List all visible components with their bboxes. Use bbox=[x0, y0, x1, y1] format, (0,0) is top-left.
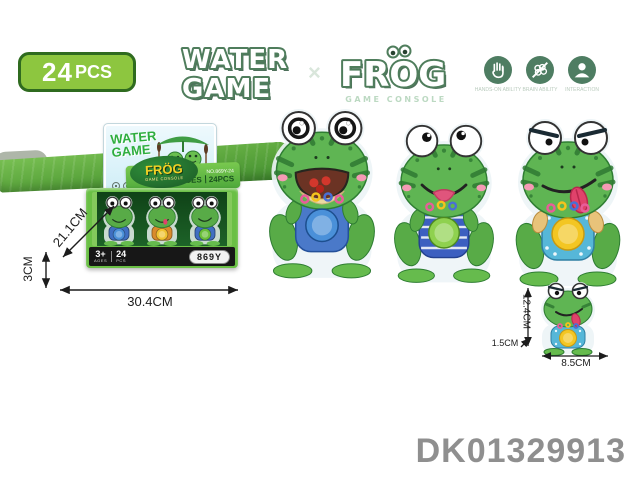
item-depth-label: 1.5CM bbox=[490, 338, 520, 348]
pad-brand-subtitle: GAME CONSOLE bbox=[145, 175, 184, 182]
quantity-badge: 24 PCS bbox=[18, 52, 136, 92]
badge-unit: PCS bbox=[75, 62, 112, 83]
feature-person: INTERACTION bbox=[566, 56, 598, 93]
frog-toy-small bbox=[536, 282, 600, 356]
logo-water: WATER bbox=[182, 45, 288, 75]
button-highlight bbox=[312, 215, 332, 235]
display-box-scene: WATER GAME bbox=[0, 118, 270, 318]
feature-icons-row: HANDS-ON ABILITY BRAIN ABILITY bbox=[482, 56, 598, 93]
product-code: DK01329913 bbox=[416, 432, 626, 471]
frog-toy-large-3 bbox=[504, 118, 632, 294]
box-depth-label: 3CM bbox=[21, 249, 35, 289]
feature-caption: INTERACTION bbox=[565, 87, 599, 93]
item-width-label: 8.5CM bbox=[548, 358, 604, 369]
box-depth-arrow bbox=[40, 248, 52, 292]
logo-text-group: WATER GAME WATER GAME bbox=[182, 45, 291, 107]
boxed-frog-toy-2 bbox=[143, 196, 181, 246]
button-highlight bbox=[434, 223, 453, 242]
person-icon bbox=[568, 56, 596, 84]
brand-text: FROG bbox=[340, 55, 446, 95]
item-depth-arrow bbox=[518, 334, 534, 350]
frog-toy-large-2 bbox=[386, 122, 502, 290]
brain-slash-icon bbox=[526, 56, 554, 84]
brand-subtitle: GAME CONSOLE bbox=[345, 95, 446, 104]
item-height-label: 12.4CM bbox=[521, 290, 532, 334]
feature-caption: BRAIN ABILITY bbox=[523, 87, 558, 93]
button-highlight bbox=[558, 224, 578, 244]
badge-count: 24 bbox=[42, 57, 73, 88]
mini-head bbox=[192, 206, 219, 228]
band-divider bbox=[205, 175, 206, 183]
boxed-frog-toy-3 bbox=[186, 196, 224, 246]
feature-brain: BRAIN ABILITY bbox=[524, 56, 556, 93]
product-photo-page: 24 PCS WATER GAME WATER GAME × FROG FROG… bbox=[0, 0, 640, 480]
feature-hand: HANDS-ON ABILITY bbox=[482, 56, 514, 93]
frog-toy-large-1 bbox=[264, 108, 380, 286]
box-width-label: 30.4CM bbox=[110, 294, 190, 309]
strip-model-code: 869Y bbox=[189, 250, 230, 264]
band-pcs: 24PCS bbox=[209, 174, 235, 184]
feature-caption: HANDS-ON ABILITY bbox=[475, 87, 521, 93]
frog-head bbox=[523, 142, 613, 218]
logo-separator: × bbox=[308, 60, 321, 86]
hand-icon bbox=[484, 56, 512, 84]
frog-brand-logo: FROG FROG GAME CONSOLE bbox=[334, 42, 456, 106]
mini-head bbox=[149, 206, 176, 228]
logo-game: GAME bbox=[182, 74, 271, 104]
